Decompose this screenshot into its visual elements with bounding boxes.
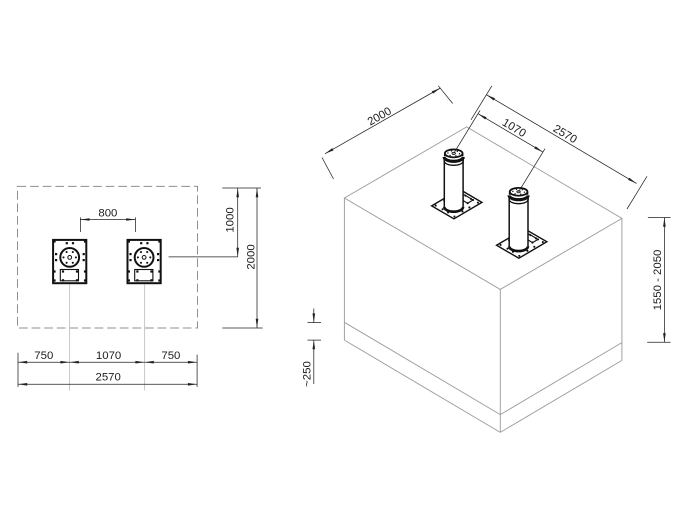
svg-text:1000: 1000 xyxy=(224,207,236,232)
svg-text:750: 750 xyxy=(161,350,180,362)
svg-text:750: 750 xyxy=(34,350,53,362)
svg-text:2570: 2570 xyxy=(96,372,121,384)
svg-text:~250: ~250 xyxy=(301,361,313,387)
svg-text:1550 - 2050: 1550 - 2050 xyxy=(652,250,664,311)
svg-text:1070: 1070 xyxy=(96,350,121,362)
svg-text:2000: 2000 xyxy=(245,244,257,269)
svg-text:800: 800 xyxy=(98,207,117,219)
